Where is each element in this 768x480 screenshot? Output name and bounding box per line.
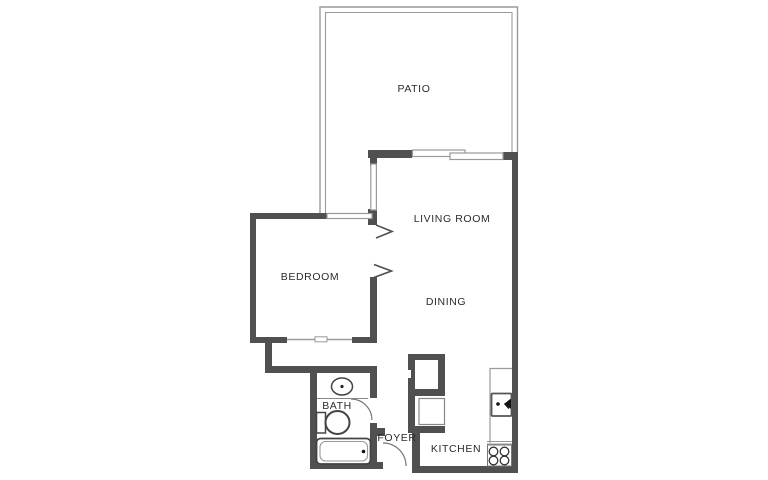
wall-closet-mid [415, 389, 445, 396]
bath-fixtures [317, 378, 371, 464]
wall-closet-left [408, 354, 415, 433]
door-swing-chevron-icons [374, 225, 392, 278]
patio-outline [320, 7, 518, 213]
wall-right-exterior [512, 152, 518, 473]
room-label-dining: DINING [426, 296, 466, 308]
chevron-top-icon [376, 225, 392, 238]
wall-bedroom-left [250, 213, 256, 343]
wall-bath-right-upper [370, 368, 377, 398]
room-label-bath: BATH [322, 400, 352, 412]
wall-bedroom-right [370, 277, 377, 343]
bedroom-patio-window [327, 214, 372, 219]
kitchen-sink-icon [492, 394, 512, 417]
stove-icon [488, 445, 512, 466]
closet-wall-notch [408, 370, 411, 378]
walls [250, 150, 518, 473]
wall-bath-top [265, 366, 377, 373]
closet-sliding-door [287, 337, 352, 342]
appliance-box [419, 399, 445, 425]
vanity-sink-icon [332, 378, 353, 395]
room-label-bedroom: BEDROOM [281, 271, 339, 283]
chevron-bottom-icon [374, 265, 392, 278]
room-label-kitchen: KITCHEN [431, 443, 481, 455]
bath-door-arc [351, 399, 372, 420]
living-left-window [371, 164, 377, 210]
wall-kitchen-bottom [412, 466, 518, 473]
room-label-foyer: FOYER [377, 432, 416, 444]
bathtub-icon [317, 439, 371, 465]
wall-bedroom-top [250, 213, 327, 219]
toilet-icon [317, 411, 350, 434]
entry-door-arc [383, 443, 406, 466]
floorplan-drawing [0, 0, 768, 480]
room-label-living-room: LIVING ROOM [414, 213, 491, 225]
floorplan: PATIO LIVING ROOM BEDROOM DINING BATH FO… [0, 0, 768, 480]
tub-drain [362, 450, 366, 454]
room-label-patio: PATIO [398, 83, 431, 95]
sliding-glass-door-panel-2 [450, 153, 503, 160]
windows [327, 150, 503, 219]
